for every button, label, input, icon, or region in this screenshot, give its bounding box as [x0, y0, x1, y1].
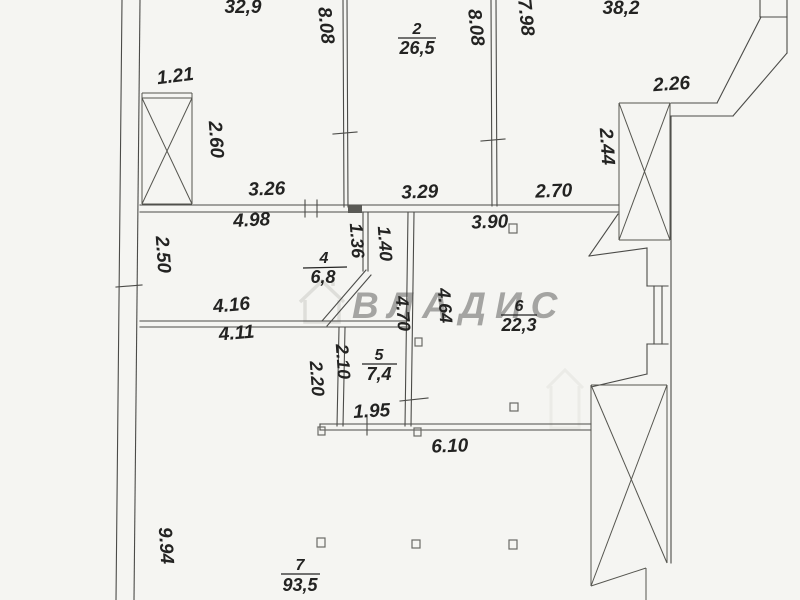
dimension-label: 8.08 — [463, 8, 488, 47]
dimension-label: 2.10 — [332, 342, 354, 379]
room-area: 7,4 — [366, 364, 391, 384]
room-area: 22,3 — [500, 315, 536, 335]
dimension-label: 2.20 — [306, 359, 328, 396]
room-number: 4 — [319, 250, 329, 267]
room-area: 32,9 — [225, 0, 262, 18]
dimension-label: 3.90 — [471, 211, 509, 233]
dimension-label: 4.16 — [211, 293, 251, 317]
dimension-label: 2.60 — [204, 119, 228, 159]
dimension-label: 1.40 — [374, 225, 396, 261]
room-number: 7 — [296, 557, 306, 574]
room-area: 38,2 — [603, 0, 640, 19]
dimension-label: 1.21 — [156, 64, 195, 89]
dimension-label: 2.70 — [534, 180, 573, 202]
room-number: 2 — [412, 21, 422, 38]
dimension-label: 6.10 — [431, 435, 469, 457]
dimension-label: 1.36 — [346, 222, 368, 259]
dimension-label: 9.94 — [154, 526, 178, 565]
dimension-label: 4.98 — [232, 209, 271, 232]
dimension-label: 4.70 — [392, 294, 414, 331]
room-area: 93,5 — [282, 575, 318, 595]
room-area: 26,5 — [398, 38, 435, 58]
room-number: 5 — [375, 347, 385, 364]
floor-plan-svg: ВЛАДИС — [0, 0, 800, 600]
dimension-label: 7.98 — [513, 0, 538, 37]
dimension-label: 2.50 — [151, 234, 175, 274]
dimension-label: 1.95 — [353, 400, 391, 423]
door-opening-hatch — [348, 205, 362, 213]
dimension-label: 4.64 — [434, 286, 456, 323]
dimension-label: 2.26 — [651, 73, 691, 97]
floor-plan-scan: ВЛАДИС — [0, 0, 800, 600]
dimension-label: 2.44 — [595, 126, 619, 166]
dimension-label: 8.08 — [313, 6, 338, 45]
room-area: 6,8 — [310, 267, 335, 287]
dimension-label: 3.29 — [401, 181, 439, 203]
dimension-label: 3.26 — [248, 178, 286, 200]
room-number: 6 — [515, 298, 524, 315]
dimension-label: 4.11 — [217, 322, 255, 346]
